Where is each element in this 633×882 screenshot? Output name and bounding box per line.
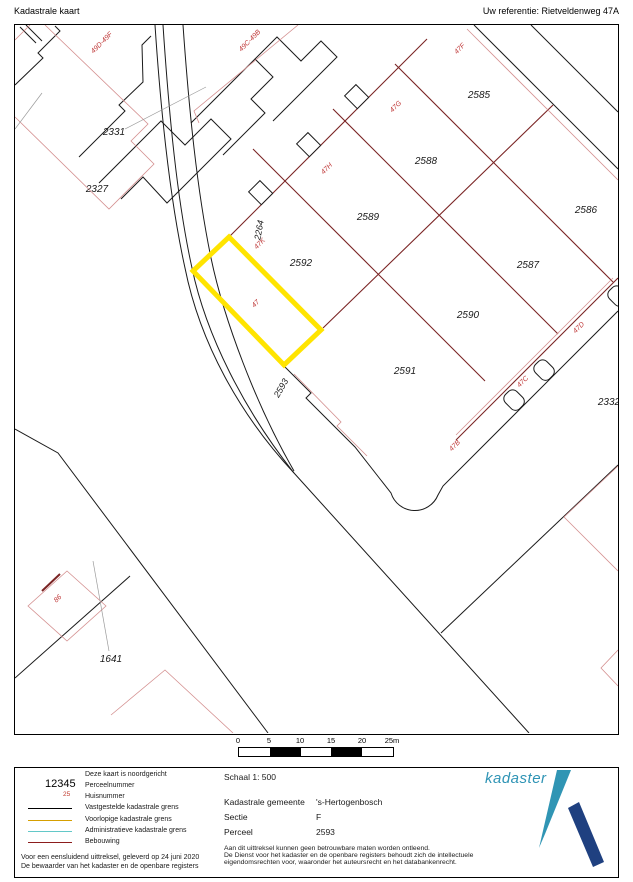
building-outline <box>28 571 106 641</box>
parcel-label: 2591 <box>393 366 416 377</box>
scale-tick-label: 5 <box>267 736 271 745</box>
house-number: 47G <box>389 100 404 115</box>
callout-line <box>125 87 206 129</box>
map-footer: 12345 25 Deze kaart is noordgericht Perc… <box>14 767 619 878</box>
road-line <box>155 25 529 733</box>
scale-segment <box>239 748 270 756</box>
building-outline <box>467 29 618 180</box>
scale-bar: 0 5 10 15 20 25m <box>0 736 633 762</box>
porches <box>249 85 618 413</box>
scale-tick-label: 15 <box>327 736 335 745</box>
house-number: 86 <box>53 594 64 605</box>
northwest-boundaries <box>15 25 337 733</box>
parcel-boundary <box>20 25 42 43</box>
building-outline <box>15 25 154 209</box>
reference-label: Uw referentie: Rietveldenweg 47A <box>483 6 619 16</box>
scale-tick-label: 25m <box>385 736 400 745</box>
building-outline <box>456 278 618 440</box>
parcel-label: 1641 <box>100 654 122 665</box>
parcel-labels: 2331 2327 2592 2589 2588 2585 2586 2587 … <box>85 90 618 665</box>
house-number-labels: 49D-49F 49C-49B 47F 47G 47H 47K 47 47D 4… <box>53 29 586 605</box>
road-label: 2264 <box>252 219 266 241</box>
road-line <box>163 25 294 473</box>
parcel-label: 2327 <box>85 184 109 195</box>
building-outline <box>111 670 233 733</box>
kadaster-logo-icon <box>15 768 618 877</box>
house-number: 47D <box>572 321 586 335</box>
scale-tick-label: 0 <box>236 736 240 745</box>
scale-tick-label: 20 <box>358 736 366 745</box>
parcel-label: 2590 <box>456 310 480 321</box>
cadastral-map-svg: 2331 2327 2592 2589 2588 2585 2586 2587 … <box>15 25 618 733</box>
building-outline <box>255 37 337 121</box>
building-outline <box>297 133 321 157</box>
parcel-boundary <box>79 36 151 157</box>
building-outline <box>15 25 30 40</box>
road-line <box>531 25 618 112</box>
cadastral-map-page: Kadastrale kaart Uw referentie: Rietveld… <box>0 0 633 882</box>
scale-tick-label: 10 <box>296 736 304 745</box>
map-canvas: 2331 2327 2592 2589 2588 2585 2586 2587 … <box>14 24 619 735</box>
building-outline <box>601 650 618 686</box>
building-outline <box>395 64 613 282</box>
house-number: 49D-49F <box>90 30 115 55</box>
building-outline <box>42 574 60 591</box>
parcel-label: 2332 <box>597 397 618 408</box>
building-outline <box>249 181 273 205</box>
parcel-label: 2592 <box>289 258 313 269</box>
building-outline <box>456 278 613 435</box>
house-number: 47H <box>320 161 335 176</box>
parcel-boundary <box>441 465 618 633</box>
logo-nib-shape <box>539 770 571 848</box>
house-number: 49C-49B <box>238 29 263 54</box>
building-outline <box>229 39 427 237</box>
parcel-label: 2331 <box>102 127 125 138</box>
building-grid <box>42 39 618 591</box>
scale-segment <box>362 748 393 756</box>
building-outline <box>253 149 485 381</box>
scale-segment <box>331 748 362 756</box>
building-outline <box>605 283 618 308</box>
house-number: 47 <box>251 298 262 309</box>
scale-segment <box>301 748 332 756</box>
parcel-label: 2587 <box>516 260 540 271</box>
building-outline <box>564 466 618 571</box>
house-number: 47F <box>453 42 467 56</box>
callout-line <box>93 561 109 651</box>
parcel-label: 2586 <box>574 205 598 216</box>
parcel-label: 2585 <box>467 90 491 101</box>
road-label: 2593 <box>271 377 290 400</box>
page-title: Kadastrale kaart <box>14 6 80 16</box>
road-line <box>474 25 618 169</box>
house-number: 47C <box>516 374 531 389</box>
scale-bar-graphic <box>238 747 394 757</box>
building-outline <box>345 85 369 109</box>
parcel-boundary <box>284 311 618 511</box>
logo-diagonal-shape <box>568 802 604 867</box>
parcel-boundary <box>15 26 60 85</box>
parcel-label: 2588 <box>414 156 438 167</box>
building-outline <box>191 59 273 155</box>
scale-segment <box>270 748 301 756</box>
parcel-label: 2589 <box>356 212 380 223</box>
callout-line <box>15 93 42 129</box>
house-number: 47B <box>448 439 462 453</box>
